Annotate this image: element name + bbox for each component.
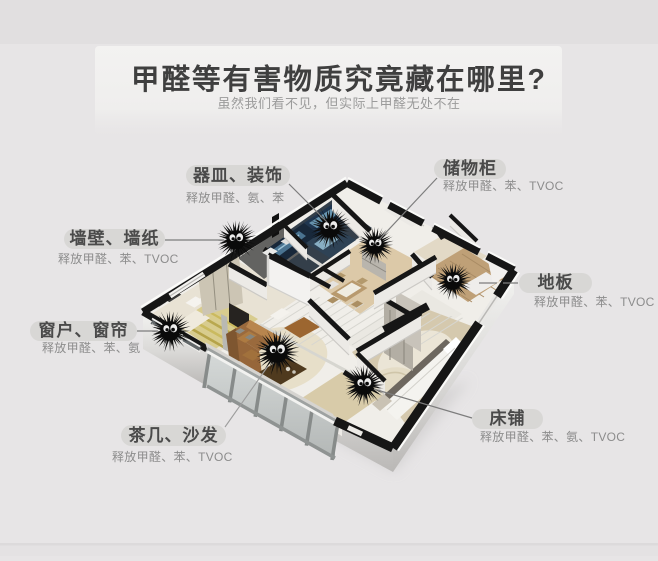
svg-text:茶几、沙发: 茶几、沙发 bbox=[129, 425, 219, 445]
svg-text:释放甲醛、苯、TVOC: 释放甲醛、苯、TVOC bbox=[443, 178, 564, 193]
svg-text:虽然我们看不见，但实际上甲醛无处不在: 虽然我们看不见，但实际上甲醛无处不在 bbox=[217, 96, 460, 111]
svg-text:储物柜: 储物柜 bbox=[443, 158, 497, 178]
svg-text:地板: 地板 bbox=[538, 272, 574, 292]
svg-text:床铺: 床铺 bbox=[490, 408, 526, 428]
svg-text:释放甲醛、苯、TVOC: 释放甲醛、苯、TVOC bbox=[58, 251, 179, 266]
svg-text:甲醛等有害物质究竟藏在哪里?: 甲醛等有害物质究竟藏在哪里? bbox=[131, 63, 547, 96]
svg-text:释放甲醛、氨、苯: 释放甲醛、氨、苯 bbox=[186, 190, 284, 205]
svg-text:释放甲醛、苯、TVOC: 释放甲醛、苯、TVOC bbox=[112, 449, 233, 464]
svg-text:窗户、窗帘: 窗户、窗帘 bbox=[39, 320, 129, 340]
svg-text:释放甲醛、苯、TVOC: 释放甲醛、苯、TVOC bbox=[534, 294, 655, 309]
svg-text:释放甲醛、苯、氨、TVOC: 释放甲醛、苯、氨、TVOC bbox=[480, 429, 625, 444]
svg-text:释放甲醛、苯、氨: 释放甲醛、苯、氨 bbox=[42, 340, 140, 355]
svg-text:器皿、装饰: 器皿、装饰 bbox=[192, 165, 283, 185]
svg-text:墙壁、墙纸: 墙壁、墙纸 bbox=[70, 228, 160, 248]
